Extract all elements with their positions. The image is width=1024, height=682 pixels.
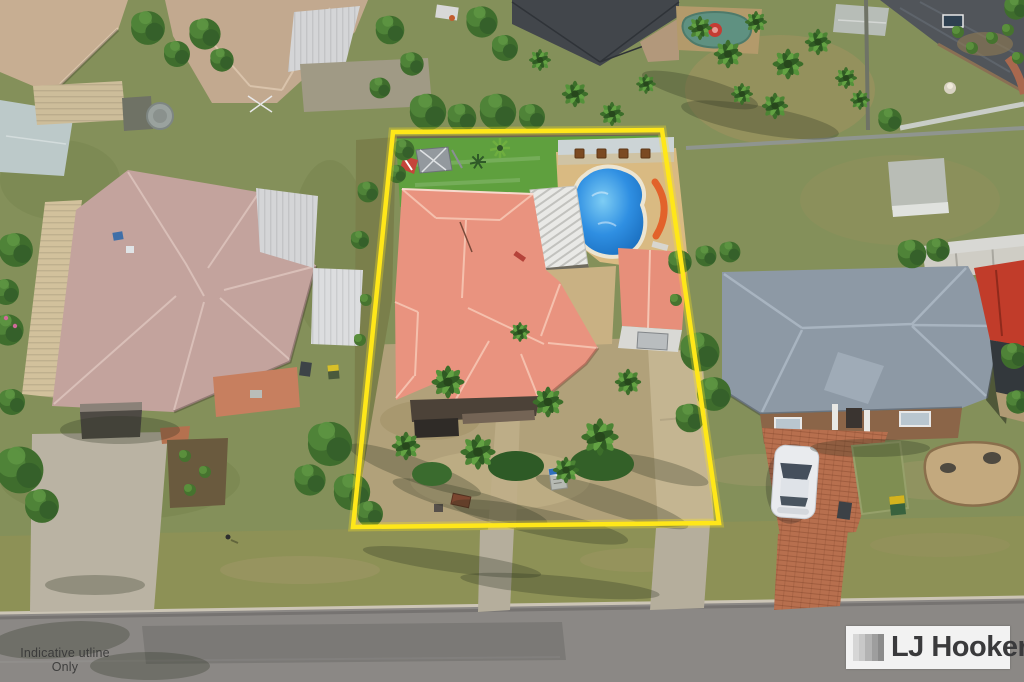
logo-stripe-icon: [853, 634, 884, 661]
tree: [926, 238, 949, 261]
front-yard-palm: [460, 434, 495, 469]
garden-mound: [488, 451, 544, 481]
tree: [131, 11, 165, 45]
portico-column: [832, 404, 838, 430]
shrub: [966, 42, 978, 54]
bird: [226, 535, 231, 540]
front-door: [846, 408, 862, 428]
front-yard-palm: [553, 457, 579, 483]
tree: [376, 16, 405, 45]
palm-tree: [745, 11, 767, 33]
palm-tree: [762, 93, 788, 119]
shrub: [184, 484, 196, 496]
front-yard-palm: [392, 432, 421, 461]
garage-door: [414, 418, 459, 438]
tree: [164, 41, 190, 67]
shrub: [670, 294, 682, 306]
tree: [308, 422, 352, 466]
tree: [492, 35, 518, 61]
skylight-window: [943, 15, 963, 27]
watermark-line2: Only: [8, 660, 122, 674]
right-backyard-shed: [888, 158, 948, 210]
palm-tree: [600, 102, 624, 126]
tree: [189, 18, 220, 49]
palm-tree: [562, 81, 588, 107]
window: [900, 412, 930, 426]
palm-tree: [636, 74, 656, 94]
watermark-line1: Indicative utline: [8, 646, 122, 660]
tree: [25, 489, 59, 523]
logo-brand-text: LJ Hooker: [891, 633, 1024, 662]
aerial-photo: Indicative utline Only LJ Hooker: [0, 0, 1024, 682]
garage-roller-door: [637, 332, 668, 350]
palm-tree: [714, 40, 743, 69]
tree: [370, 78, 391, 99]
shrub: [354, 334, 366, 346]
palm-tree: [835, 67, 857, 89]
shrub: [360, 294, 372, 306]
front-yard-palm: [615, 369, 641, 395]
ac-unit: [250, 390, 262, 398]
front-yard-palm: [581, 418, 618, 455]
tree: [210, 48, 233, 71]
shrub: [1002, 24, 1014, 36]
palm-tree: [731, 83, 753, 105]
palm-tree: [850, 90, 870, 110]
tree: [400, 52, 423, 75]
fence: [866, 0, 868, 130]
shrub: [986, 32, 998, 44]
garden-mound: [412, 462, 452, 486]
palm-tree: [805, 29, 831, 55]
palm-tree: [688, 16, 712, 40]
tree: [720, 242, 741, 263]
tree: [898, 240, 927, 269]
hedge-tree: [410, 94, 446, 130]
mulch-bed: [167, 438, 228, 508]
palm-tree: [773, 49, 804, 80]
rock-garden: [925, 442, 1020, 505]
ljhooker-logo: LJ Hooker: [846, 626, 1010, 669]
blue-chair: [112, 231, 123, 241]
watermark-disclaimer: Indicative utline Only: [8, 646, 122, 674]
front-yard-palm: [432, 366, 465, 399]
tree: [294, 464, 325, 495]
front-yard-palm: [533, 387, 564, 418]
tree: [351, 231, 369, 249]
tree: [696, 246, 717, 267]
shrub: [1012, 52, 1024, 64]
shrub: [199, 466, 211, 478]
tree: [358, 182, 379, 203]
hedge-tree: [480, 94, 516, 130]
hedge-tree: [519, 104, 545, 130]
palm-tree: [529, 49, 551, 71]
tree: [466, 6, 497, 37]
tree: [0, 233, 33, 267]
subject-driveway-apron: [650, 524, 710, 610]
shrub: [952, 26, 964, 38]
tree: [878, 108, 901, 131]
tree: [394, 140, 415, 161]
shrub: [179, 450, 191, 462]
tree: [0, 389, 25, 415]
front-yard-palm: [510, 322, 530, 342]
